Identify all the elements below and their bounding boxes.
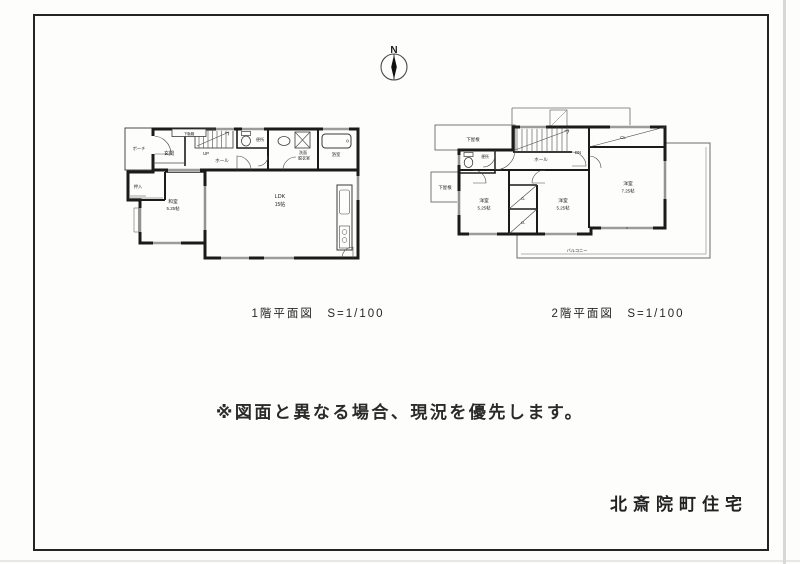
kitchen-counter	[337, 185, 352, 250]
scan-shadow-bottom	[0, 560, 800, 562]
notice-text: ※図面と異なる場合、現況を優先します。	[0, 398, 800, 423]
label-roof-left: 下屋根	[438, 184, 452, 191]
label-closet-a: CL	[521, 197, 526, 201]
floor1-caption: 1階平面図 S=1/100	[183, 305, 453, 321]
sink-icon	[278, 137, 290, 146]
label-closet-top: CL	[620, 135, 626, 140]
label-toilet-2f: 便所	[481, 154, 489, 159]
label-washroom-1: 洗面	[299, 149, 307, 155]
compass-icon: N	[381, 45, 407, 81]
label-closet-b: CL	[521, 221, 526, 225]
north-compass: N	[370, 40, 418, 88]
label-bath: 浴室	[332, 151, 341, 158]
oshiire-doors	[130, 196, 163, 198]
toilet-icon	[242, 132, 251, 147]
stairs-2f	[515, 127, 569, 152]
floor2-caption: 2階平面図 S=1/100	[483, 305, 753, 321]
floor1-plan: ポーチ 玄関 下駄箱 UP ホール 便所 洗面 脱衣室 浴室 押入 和室 5.2…	[118, 108, 368, 268]
washer-icon	[295, 132, 310, 148]
label-porch: ポーチ	[133, 145, 146, 151]
label-stairs-up: UP	[203, 151, 209, 156]
label-room1-size: 5.25帖	[478, 205, 492, 212]
label-room2-name: 洋室	[558, 197, 568, 204]
scan-shadow-right	[783, 0, 786, 564]
label-balcony: バルコニー	[567, 248, 588, 253]
label-jroom-name: 和室	[168, 198, 178, 205]
label-jroom-size: 5.25帖	[167, 205, 181, 212]
label-oshiire: 押入	[134, 183, 143, 190]
label-ldk-size: 15帖	[275, 201, 286, 208]
sheet-border	[33, 14, 769, 551]
label-washroom-2: 脱衣室	[298, 155, 310, 161]
label-room3-name: 洋室	[623, 180, 633, 187]
label-hall-2f: ホール	[534, 157, 548, 162]
label-shoe-cabinet: 下駄箱	[184, 131, 195, 136]
toilet-icon-2f	[464, 153, 473, 168]
label-stairs-dn: DN	[575, 150, 581, 155]
label-hall-1f: ホール	[215, 158, 229, 163]
door-arcs-2f	[473, 150, 601, 183]
label-toilet-1f: 便所	[256, 136, 264, 142]
roof-outlines	[431, 108, 630, 202]
label-room2-size: 5.25帖	[557, 205, 571, 212]
label-room3-size: 7.25帖	[622, 188, 636, 195]
label-room1-name: 洋室	[479, 197, 489, 204]
label-ldk-name: LDK	[275, 194, 286, 200]
floor2-plan: 下屋根 下屋根 便所 DN ホール CL CL CL 洋室 5.25帖 洋室 5…	[425, 103, 720, 268]
project-title: 北斎院町住宅	[610, 490, 748, 515]
label-entrance: 玄関	[164, 150, 174, 157]
bathtub-icon	[322, 134, 351, 148]
label-roof-top: 下屋根	[466, 136, 480, 143]
